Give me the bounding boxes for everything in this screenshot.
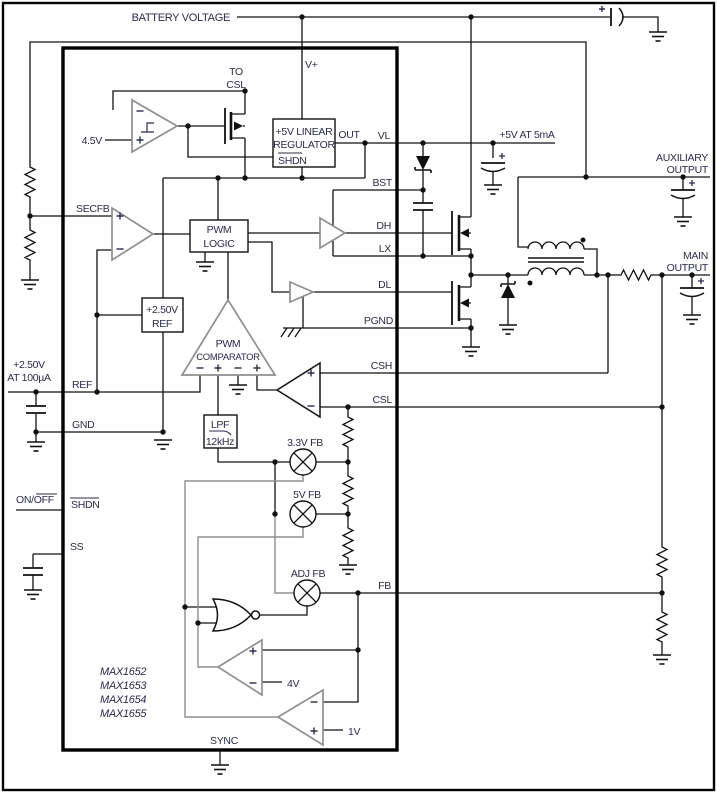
pin-shdn: SHDN: [71, 499, 100, 511]
sense-resistor: [619, 270, 654, 280]
to-csl-label-2: CSL: [226, 79, 246, 91]
nor-gate: [213, 599, 260, 631]
five-v-label: +5V AT 5mA: [499, 129, 555, 141]
ref-box-label-2: REF: [152, 318, 172, 330]
uvlo-comparator: [132, 100, 177, 152]
out-label: OUT: [338, 129, 360, 141]
mux-3v3-icon: [290, 449, 316, 475]
regulator-shdn-label: SHDN: [278, 155, 307, 167]
fb-divider-r1: [657, 545, 667, 580]
to-csl-label-1: TO: [229, 66, 243, 78]
pin-csl: CSL: [372, 394, 392, 406]
pwm-logic-label-1: PWM: [207, 224, 232, 236]
pwm-logic-label-2: LOGIC: [203, 238, 235, 250]
ic-outline: [63, 48, 397, 750]
phase-dot-primary: [528, 281, 533, 286]
ref-capacitor: [26, 406, 46, 413]
ref-box-label-1: +2.50V: [146, 304, 178, 316]
ref-4v-label: 4V: [287, 678, 300, 690]
phase-dot-secondary: [581, 238, 586, 243]
fb-adj-label: ADJ FB: [291, 568, 326, 580]
part-number-1: MAX1652: [100, 666, 146, 678]
uvlo-ref-label: 4.5V: [82, 135, 103, 147]
v-plus-label: V+: [305, 59, 318, 71]
pin-sync: SYNC: [210, 735, 239, 747]
pin-pgnd: PGND: [364, 315, 394, 327]
pin-csh: CSH: [371, 360, 392, 372]
secfb-divider-r2: [25, 228, 35, 263]
secfb-divider-r1: [25, 165, 35, 200]
pwm-comp-label-1: PWM: [216, 338, 241, 350]
ref-1v-label: 1V: [348, 726, 361, 738]
dh-driver: [320, 190, 345, 256]
ss-capacitor: [23, 568, 43, 575]
pin-gnd: GND: [72, 419, 95, 431]
pin-vl: VL: [378, 130, 391, 142]
pin-ss: SS: [70, 541, 84, 553]
pwm-comp-label-2: COMPARATOR: [196, 352, 260, 363]
pin-dl: DL: [378, 279, 391, 291]
regulator-label-2: REGULATOR: [273, 139, 335, 151]
mux-5v-icon: [290, 501, 316, 527]
transformer: [528, 238, 586, 286]
comparator-4v: [218, 640, 262, 695]
bootstrap-diode: [415, 156, 431, 173]
chassis-ground-icon: [281, 328, 303, 337]
lpf-label-2: 12kHz: [206, 436, 234, 448]
fb-5-label: 5V FB: [293, 489, 321, 501]
aux-output-label-2: OUTPUT: [667, 164, 709, 176]
pin-fb: FB: [378, 580, 391, 592]
current-sense-amp: [277, 363, 320, 417]
battery-capacitor: [599, 6, 623, 26]
dl-driver: [290, 282, 313, 302]
on-off-label: ON/OFF: [16, 494, 54, 506]
internal-fb-r1: [343, 415, 353, 450]
internal-fb-r3: [343, 526, 353, 561]
pin-ref: REF: [72, 379, 92, 391]
main-output-label-2: OUTPUT: [667, 262, 709, 274]
fb-divider-r2: [657, 610, 667, 645]
mux-adj-icon: [294, 580, 320, 606]
regulator-label-1: +5V LINEAR: [276, 126, 334, 138]
battery-voltage-label: BATTERY VOLTAGE: [132, 12, 230, 24]
lpf-label-1: LPF: [211, 419, 229, 431]
comparator-1v: [278, 690, 323, 745]
junction-dots: [27, 14, 694, 652]
pin-lx: LX: [379, 243, 392, 255]
internal-fb-r2: [343, 474, 353, 509]
aux-output-label-1: AUXILIARY: [656, 152, 708, 164]
part-number-3: MAX1654: [100, 694, 146, 706]
pin-dh: DH: [376, 220, 391, 232]
pin-bst: BST: [372, 177, 392, 189]
schematic-canvas: BATTERY VOLTAGE V+ TO CSL 4.5V +5V LINEA…: [0, 0, 717, 793]
main-output-label-1: MAIN: [683, 250, 708, 262]
ref-out-label-2: AT 100µA: [7, 372, 51, 384]
schematic-max1652: BATTERY VOLTAGE V+ TO CSL 4.5V +5V LINEA…: [0, 0, 717, 793]
pin-secfb: SECFB: [76, 203, 110, 215]
ref-out-label-1: +2.50V: [13, 359, 45, 371]
fb-33-label: 3.3V FB: [287, 437, 323, 449]
part-number-4: MAX1655: [100, 708, 147, 720]
boost-capacitor: [413, 203, 433, 210]
part-number-2: MAX1653: [100, 680, 147, 692]
schottky-diode: [501, 281, 515, 298]
